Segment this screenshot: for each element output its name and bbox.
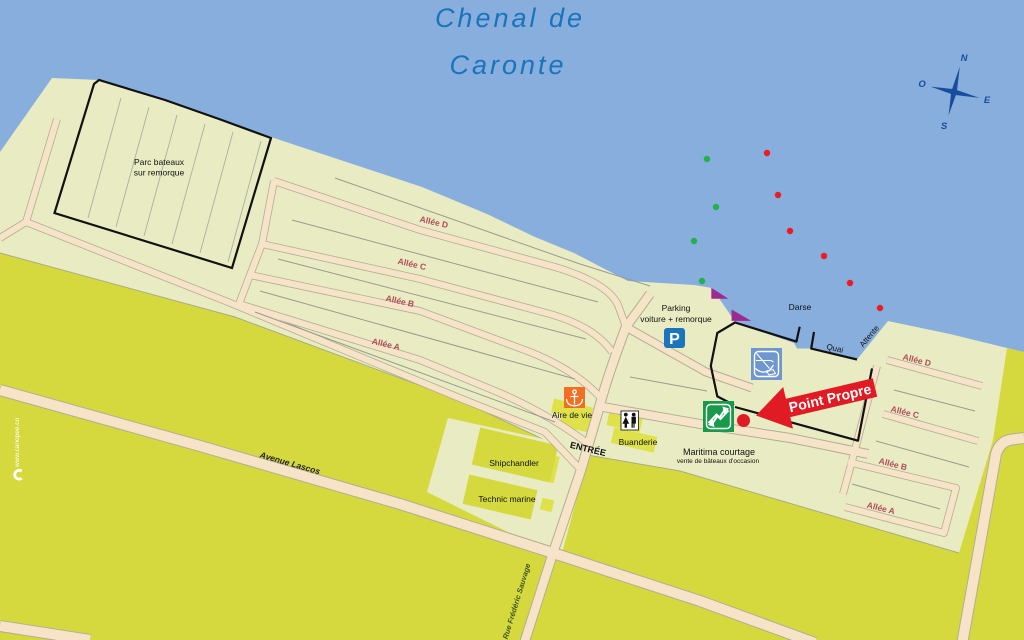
svg-text:P: P [669, 331, 680, 348]
svg-text:Buanderie: Buanderie [619, 437, 658, 447]
svg-text:Chenal de: Chenal de [435, 3, 585, 33]
svg-text:vente de bâteaux d'occasion: vente de bâteaux d'occasion [677, 458, 760, 465]
svg-text:Maritima courtage: Maritima courtage [683, 447, 755, 457]
svg-text:Parc bateaux: Parc bateaux [134, 157, 185, 167]
svg-text:O: O [918, 79, 926, 90]
svg-text:sur remorque: sur remorque [134, 168, 185, 178]
svg-text:Parking: Parking [662, 303, 691, 313]
svg-text:www.canopee.co: www.canopee.co [14, 417, 21, 468]
svg-text:E: E [984, 95, 991, 106]
svg-text:S: S [941, 121, 948, 132]
svg-text:Caronte: Caronte [449, 50, 566, 80]
svg-text:N: N [961, 53, 969, 64]
svg-text:Shipchandler: Shipchandler [489, 458, 539, 468]
svg-text:Aire de vie: Aire de vie [552, 410, 592, 420]
svg-text:voiture + remorque: voiture + remorque [640, 314, 712, 324]
svg-text:Technic marine: Technic marine [478, 494, 535, 504]
svg-text:Darse: Darse [789, 302, 812, 312]
